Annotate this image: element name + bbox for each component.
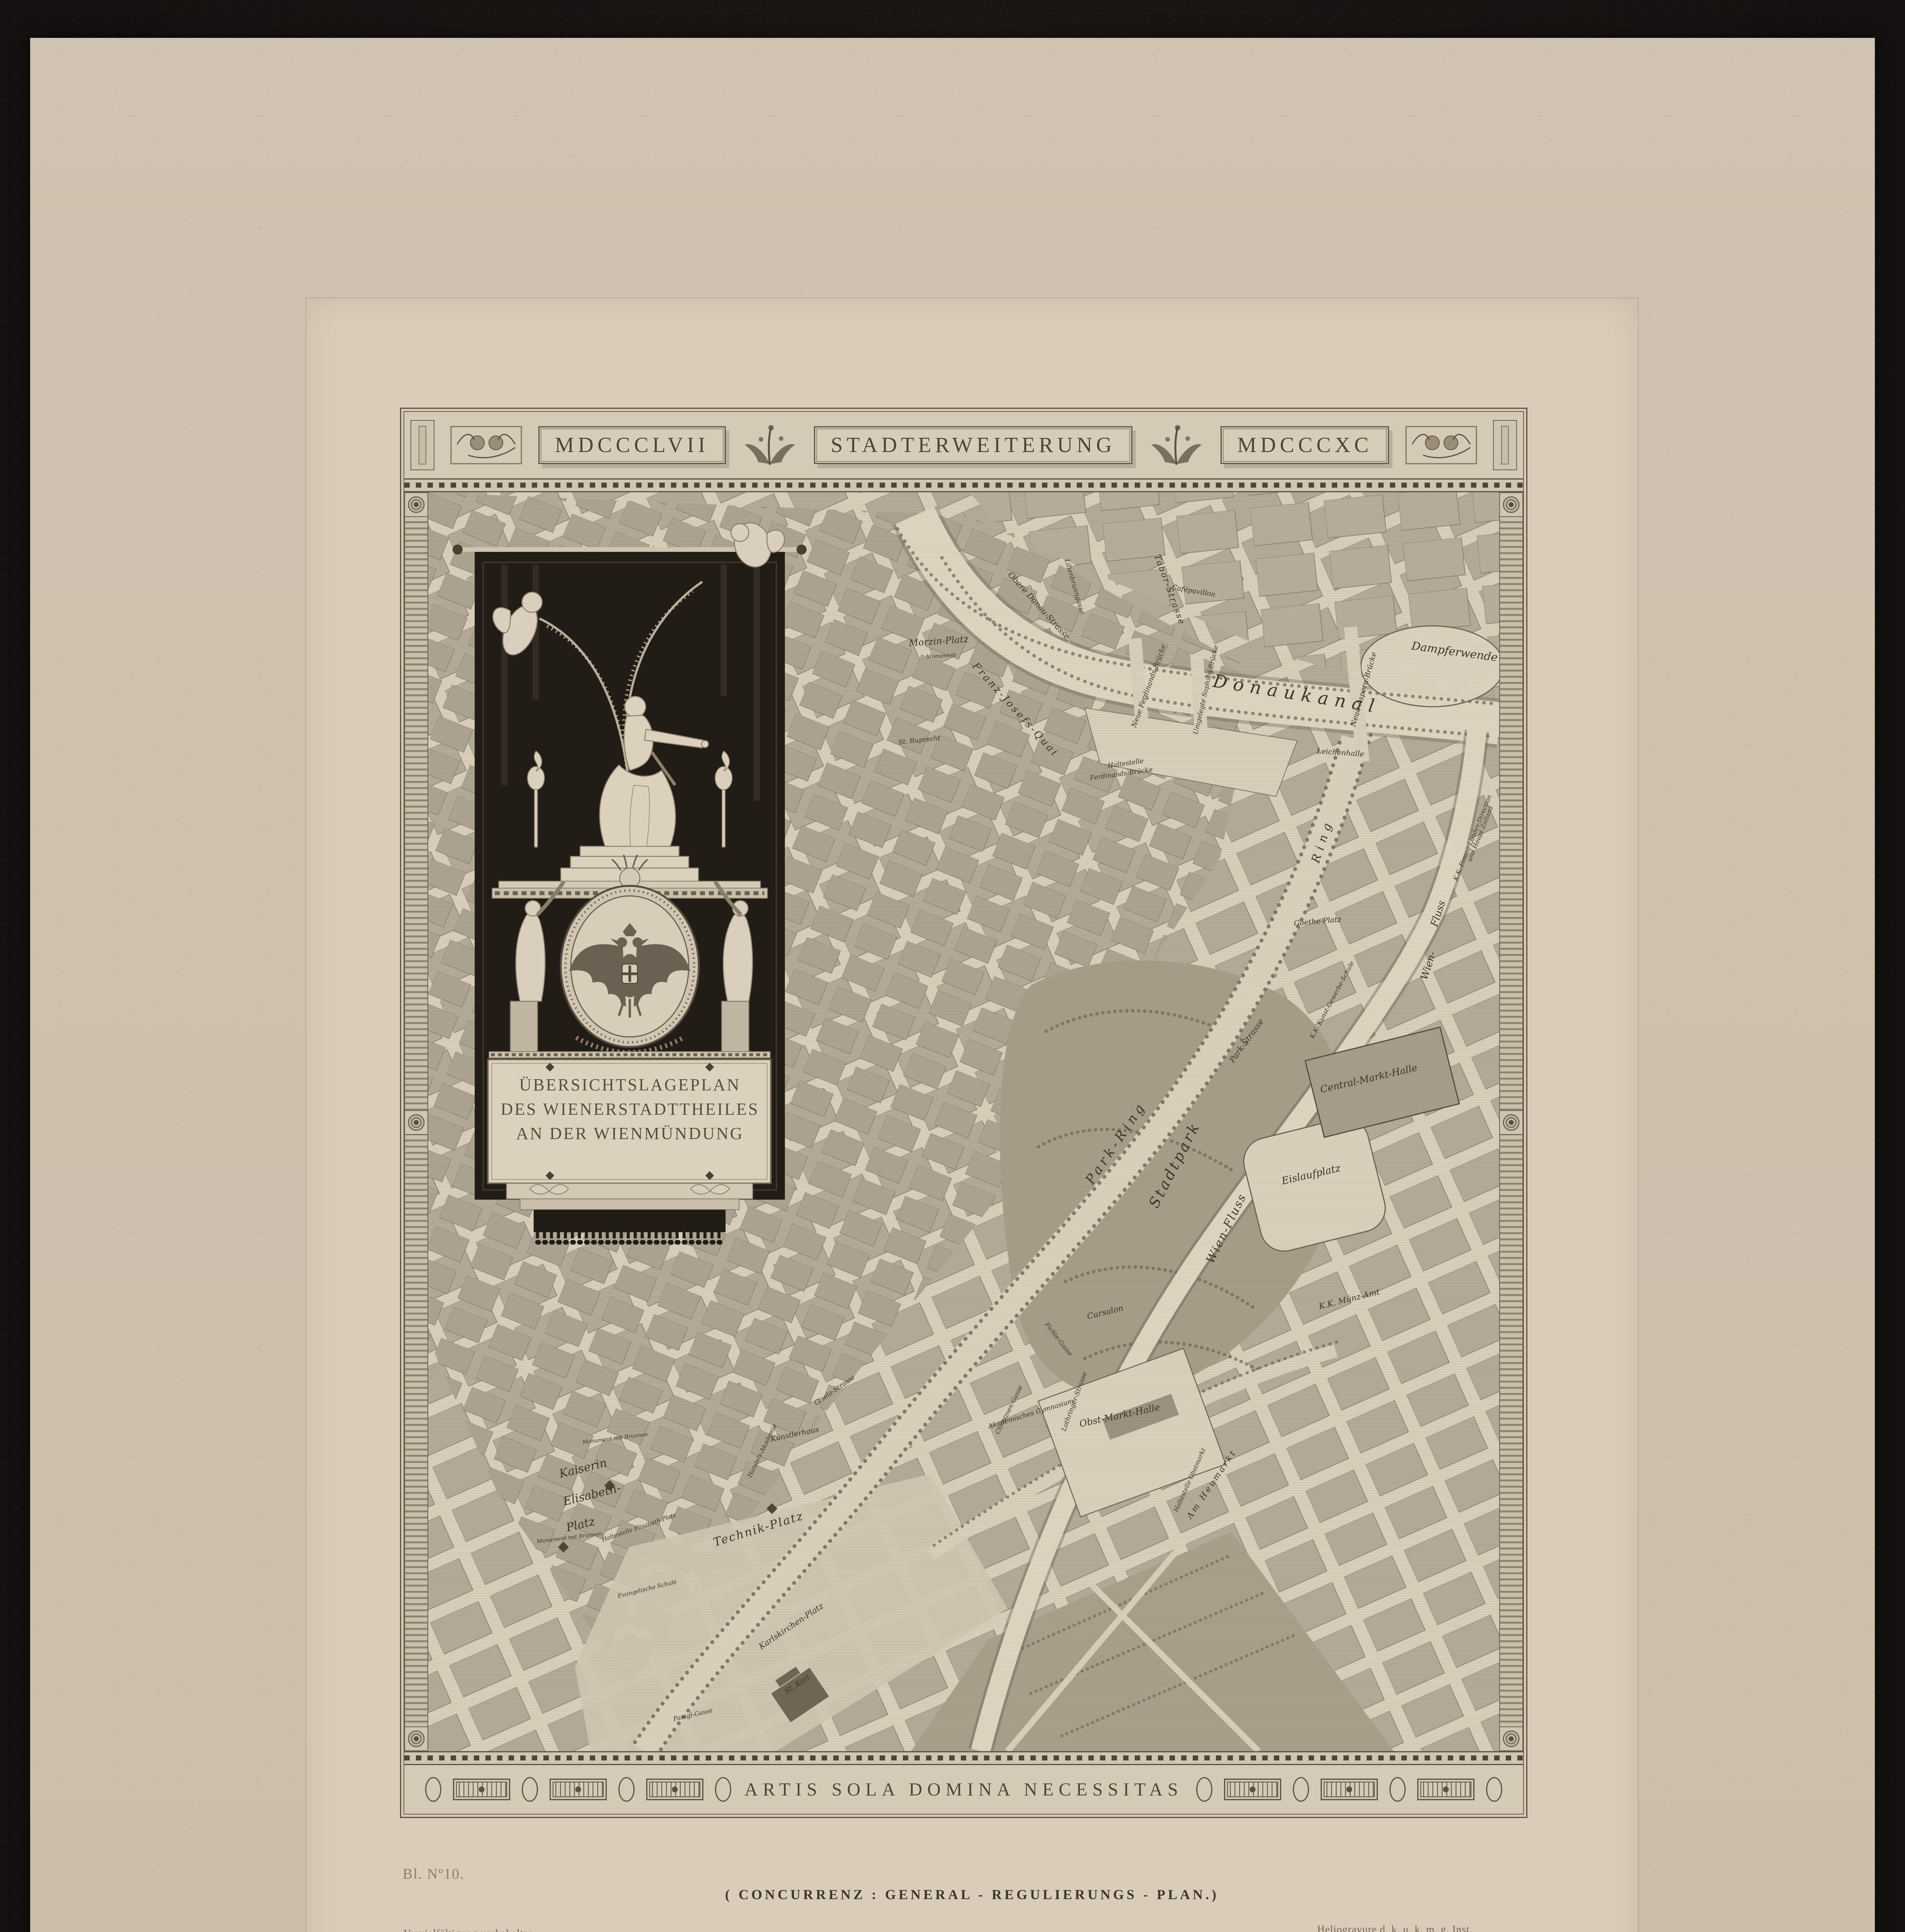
band-endcap: [410, 420, 434, 470]
ellipse-ornament: [1196, 1777, 1212, 1802]
rosette-icon: [405, 492, 427, 517]
cartouche-title-line: ÜBERSICHTSLAGEPLAN: [490, 1073, 770, 1097]
rosette-icon: [1500, 1726, 1522, 1751]
cartouche-title-line: DES WIENERSTADTTHEILES: [490, 1097, 770, 1121]
ornament-row-left: [425, 1777, 731, 1802]
rosette-icon: [1500, 1110, 1522, 1135]
band-endcap: [1493, 420, 1517, 470]
ellipse-ornament: [1389, 1777, 1406, 1802]
greek-key-ornament: [1224, 1779, 1281, 1800]
greek-key-ornament: [550, 1779, 607, 1800]
greek-key-ornament: [1321, 1779, 1378, 1800]
ellipse-ornament: [522, 1777, 538, 1802]
valance: [534, 1210, 726, 1232]
ellipse-ornament: [1486, 1777, 1502, 1802]
printer-credit: Heliogravure d. k. u. k. m. g. Inst.: [1317, 1923, 1473, 1932]
motto-band: ARTIS SOLA DOMINA NECESSITAS: [404, 1765, 1523, 1814]
ellipse-ornament: [425, 1777, 441, 1802]
mat-board: MDCCCLVII STADTERWEITERUNG MDCCC: [30, 38, 1875, 1932]
greek-key-ornament: [453, 1779, 510, 1800]
title-cartouche: ÜBERSICHTSLAGEPLAN DES WIENERSTADTTHEILE…: [452, 514, 807, 1252]
cartouche-title: ÜBERSICHTSLAGEPLAN DES WIENERSTADTTHEILE…: [490, 1073, 770, 1146]
rosette-icon: [405, 1110, 427, 1135]
map-print: MDCCCLVII STADTERWEITERUNG MDCCC: [400, 408, 1527, 1818]
rosette-icon: [405, 1726, 427, 1751]
copyright-note: Vervielfältigung vorbehalten.: [403, 1927, 537, 1932]
fluted-border-right: [1499, 492, 1523, 1751]
title-band: MDCCCLVII STADTERWEITERUNG MDCCC: [404, 412, 1523, 478]
fluted-border-left: [404, 492, 428, 1751]
series-title: ( CONCURRENZ : GENERAL - REGULIERUNGS - …: [305, 1886, 1639, 1903]
plate-impression: MDCCCLVII STADTERWEITERUNG MDCCC: [305, 298, 1639, 1932]
ornament-row-right: [1196, 1777, 1502, 1802]
rosette-icon: [1500, 492, 1522, 517]
floral-ornament: [741, 421, 799, 469]
year-plaque-left: MDCCCLVII: [538, 426, 726, 464]
greek-key-ornament: [1417, 1779, 1474, 1800]
sheet-number: Bl. Nº10.: [403, 1866, 465, 1883]
motto-text: ARTIS SOLA DOMINA NECESSITAS: [744, 1779, 1183, 1800]
greek-key-ornament: [646, 1779, 703, 1800]
ellipse-ornament: [715, 1777, 731, 1802]
mask-ornament: [1404, 423, 1478, 468]
year-plaque-right: MDCCCXC: [1221, 426, 1389, 464]
cartouche-title-line: AN DER WIENMÜNDUNG: [490, 1121, 770, 1146]
ellipse-ornament: [1293, 1777, 1309, 1802]
ellipse-ornament: [618, 1777, 635, 1802]
dentil-molding: [404, 478, 1523, 492]
mask-ornament: [449, 423, 523, 468]
floral-ornament: [1147, 421, 1205, 469]
title-plaque: STADTERWEITERUNG: [814, 426, 1132, 464]
dentil-molding: [404, 1751, 1523, 1765]
